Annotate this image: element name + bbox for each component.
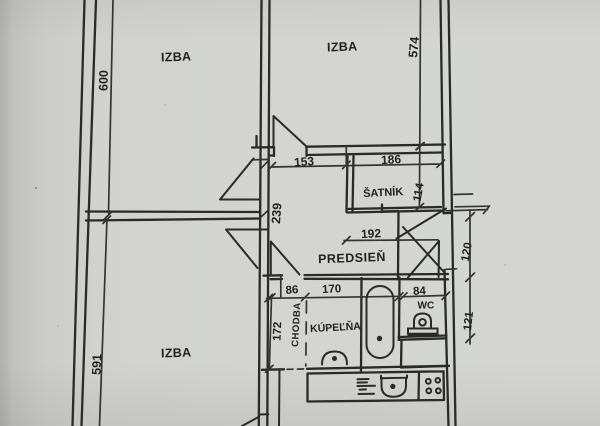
svg-text:186: 186 <box>381 152 402 167</box>
svg-text:600: 600 <box>97 70 111 91</box>
svg-text:121: 121 <box>462 310 476 331</box>
svg-text:IZBA: IZBA <box>161 49 192 64</box>
svg-text:CHODBA: CHODBA <box>290 302 303 347</box>
svg-text:IZBA: IZBA <box>327 39 358 54</box>
svg-text:239: 239 <box>269 202 284 224</box>
svg-text:192: 192 <box>361 226 382 241</box>
svg-text:PREDSIEŇ: PREDSIEŇ <box>318 249 386 266</box>
svg-text:172: 172 <box>272 322 285 342</box>
svg-text:574: 574 <box>406 36 422 58</box>
svg-text:591: 591 <box>90 354 105 375</box>
svg-text:170: 170 <box>322 283 342 296</box>
svg-text:ŠATNÍK: ŠATNÍK <box>363 185 404 200</box>
svg-text:WC: WC <box>418 301 435 312</box>
svg-text:153: 153 <box>294 154 315 169</box>
svg-text:IZBA: IZBA <box>161 345 192 360</box>
svg-text:84: 84 <box>413 285 427 298</box>
svg-text:86: 86 <box>285 284 298 297</box>
svg-text:KÚPEĽŇA: KÚPEĽŇA <box>310 319 362 335</box>
